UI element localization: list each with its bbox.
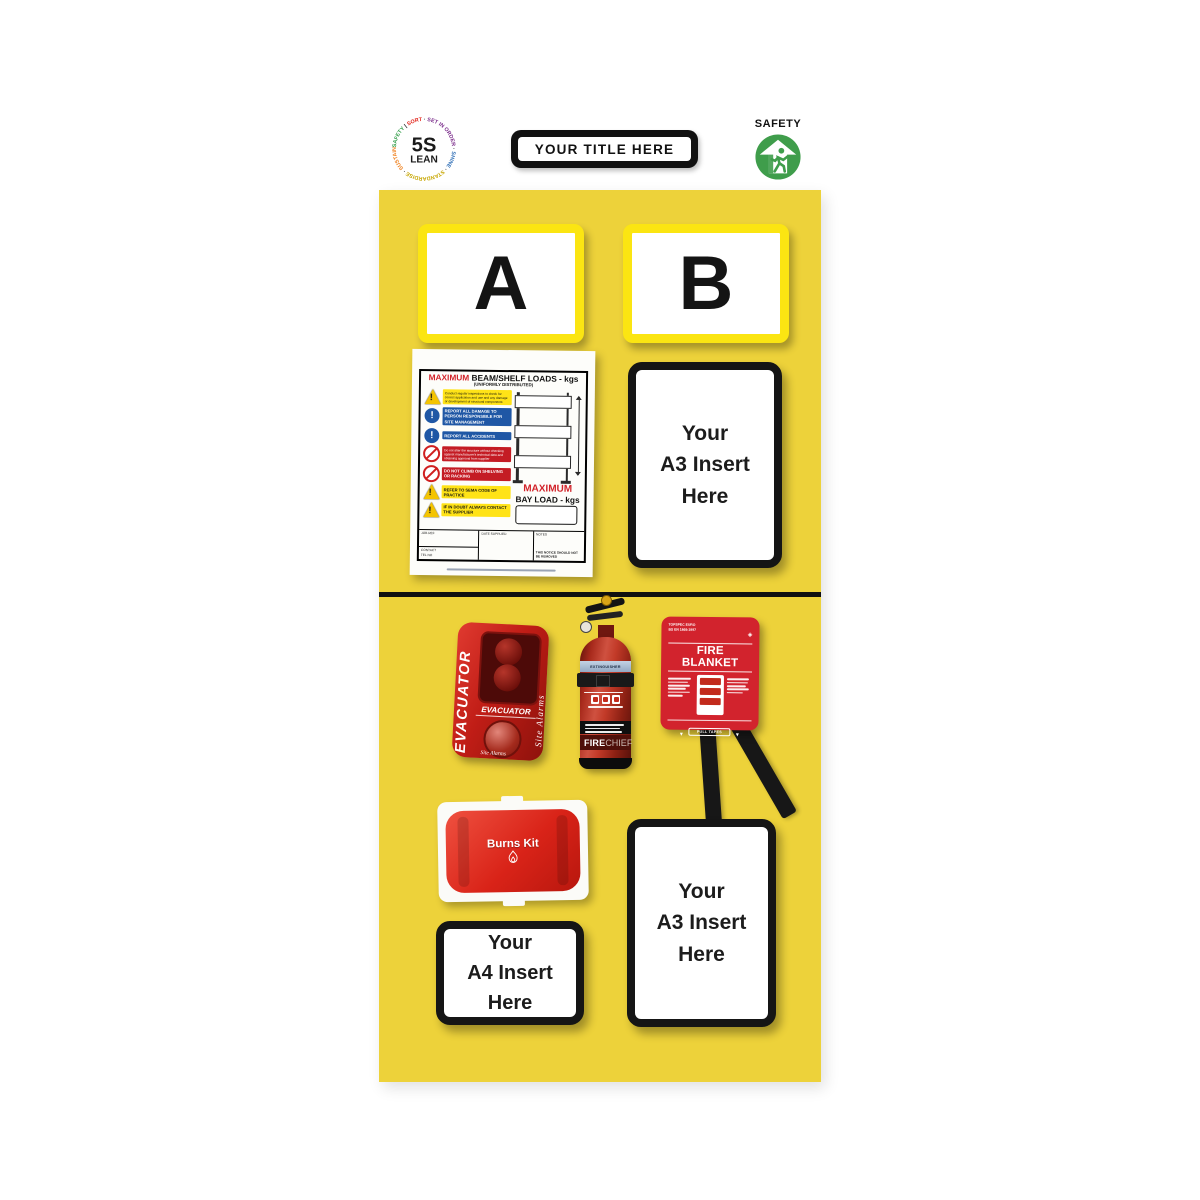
flame-icon xyxy=(507,850,519,864)
bay-load-caption: MAXIMUM BAY LOAD - kgs xyxy=(514,484,582,503)
form-job-ref: JOB REF xyxy=(419,530,479,547)
poster-footnote-line xyxy=(446,568,556,571)
safety-exit-icon xyxy=(754,133,802,181)
extinguisher-base xyxy=(579,758,632,769)
burns-kit-station: Burns Kit xyxy=(437,800,589,903)
extinguisher-tamper-seal xyxy=(601,595,612,606)
evacuator-front-label: EVACUATOR xyxy=(476,705,536,719)
alarm-bell xyxy=(494,638,522,666)
rack-rule-row: ! REPORT ALL ACCIDENTS xyxy=(423,428,511,444)
instruction-pictogram xyxy=(602,695,610,704)
extinguisher-band-label: EXTINGUISHER xyxy=(580,661,631,672)
form-date-supplied: DATE SUPPLIED xyxy=(479,531,534,561)
bay-label-b: B xyxy=(623,224,789,343)
rack-rule-row: DO NOT CLIMB ON SHELVING OR RACKING xyxy=(423,465,511,483)
alarm-bell xyxy=(493,664,521,692)
a4-insert-frame: Your A4 Insert Here xyxy=(436,921,584,1025)
extinguisher-body: EXTINGUISHER FIRECHIEF xyxy=(580,637,631,769)
rack-title-maximum: MAXIMUM xyxy=(429,372,470,382)
extinguisher-brand: FIRECHIEF xyxy=(580,735,631,750)
a4-insert-placeholder: Your A4 Insert Here xyxy=(467,928,553,1018)
5s-lean-logo: SAFETY | SORT · SET IN ORDER · SHINE · S… xyxy=(385,110,463,188)
fire-extinguisher: EXTINGUISHER FIRECHIEF xyxy=(577,597,634,777)
rack-rule-row: Do not alter the structure without check… xyxy=(423,445,511,463)
a3-insert-placeholder: Your A3 Insert Here xyxy=(660,418,750,513)
warning-triangle-icon xyxy=(424,389,441,404)
form-notes: NOTES xyxy=(536,532,582,537)
certification-diamond-icon xyxy=(748,623,753,641)
burns-kit-case: Burns Kit xyxy=(445,809,580,893)
fire-blanket-instructions xyxy=(668,674,752,717)
a3-insert-frame-bottom: Your A3 Insert Here xyxy=(627,819,776,1027)
pressure-gauge-icon xyxy=(580,621,592,633)
a3-insert-frame-top: Your A3 Insert Here xyxy=(628,362,782,568)
form-tel-no: TEL NO xyxy=(421,553,476,559)
board-title-text: YOUR TITLE HERE xyxy=(535,142,675,157)
bay-letter-a: A xyxy=(474,246,529,322)
mandatory-circle-icon: ! xyxy=(423,428,440,443)
instruction-pictogram xyxy=(612,695,620,704)
form-do-not-remove: THIS NOTICE SHOULD NOT BE REMOVED xyxy=(536,550,582,559)
fire-blanket-title: FIRE BLANKET xyxy=(668,642,752,672)
warning-triangle-icon xyxy=(422,502,439,517)
bay-letter-b: B xyxy=(679,246,734,322)
rack-rule-row: Conduct regular inspections to check for… xyxy=(424,389,512,405)
logo-5s-text: 5S xyxy=(412,134,437,156)
rack-notice-title: MAXIMUM BEAM/SHELF LOADS - kgs (UNIFORML… xyxy=(421,373,586,388)
evacuator-window xyxy=(477,631,542,706)
instruction-pictogram xyxy=(591,695,599,704)
prohibition-circle-icon xyxy=(423,445,440,462)
rack-safety-notice: MAXIMUM BEAM/SHELF LOADS - kgs (UNIFORML… xyxy=(410,349,596,577)
rack-rule-row: IF IN DOUBT ALWAYS CONTACT THE SUPPLIER xyxy=(422,502,510,518)
extinguisher-lever xyxy=(587,611,623,621)
mounting-strap xyxy=(577,673,634,687)
fire-blanket-spec: TOPSPEC EURO BS EN 1869:1997 xyxy=(668,623,696,632)
logo-lean-text: LEAN xyxy=(410,154,438,165)
rack-notice-form: JOB REF CONTACT TEL NO DATE SUPPLIED NOT… xyxy=(419,529,584,561)
bracket-tab xyxy=(501,796,523,803)
fire-blanket-pack: TOPSPEC EURO BS EN 1869:1997 FIRE BLANKE… xyxy=(660,616,759,730)
no-climbing-icon xyxy=(423,465,440,482)
board-title-plate: YOUR TITLE HERE xyxy=(511,130,698,168)
mandatory-circle-icon: ! xyxy=(423,409,440,424)
case-rib xyxy=(457,817,469,887)
pull-tapes-label: PULL TAPES xyxy=(689,728,730,736)
rack-diagram-column: MAXIMUM BAY LOAD - kgs xyxy=(513,390,583,524)
a3-insert-placeholder: Your A3 Insert Here xyxy=(657,876,747,971)
rack-rule-row: ! REPORT ALL DAMAGE TO PERSON RESPONSIBL… xyxy=(423,407,511,426)
board-title-inner: YOUR TITLE HERE xyxy=(518,137,691,161)
rack-diagram xyxy=(514,392,583,483)
bay-load-write-in-box xyxy=(515,505,577,525)
rack-rule-row: REFER TO SEMA CODE OF PRACTICE xyxy=(423,484,511,500)
down-arrow-icon xyxy=(735,723,740,741)
rack-notice-rules: Conduct regular inspections to check for… xyxy=(422,389,512,524)
extinguisher-instruction-label xyxy=(584,690,627,720)
instruction-text-left xyxy=(668,674,694,716)
bay-label-a: A xyxy=(418,224,584,343)
case-rib xyxy=(556,815,568,885)
extinguisher-warning-band xyxy=(580,721,631,734)
rack-notice-frame: MAXIMUM BEAM/SHELF LOADS - kgs (UNIFORML… xyxy=(417,369,588,563)
burns-kit-label: Burns Kit xyxy=(487,838,539,851)
down-arrow-icon xyxy=(679,723,684,741)
instruction-text-right xyxy=(726,675,752,717)
evacuator-site-alarm: EVACUATOR EVACUATOR Site Alarms Site Ala… xyxy=(452,622,550,762)
pull-tapes-row: PULL TAPES xyxy=(667,719,751,741)
instruction-diagram-panel xyxy=(696,674,723,714)
safety-badge-label: SAFETY xyxy=(752,118,804,130)
product-image-canvas: SAFETY | SORT · SET IN ORDER · SHINE · S… xyxy=(0,0,1200,1200)
bracket-tab xyxy=(503,899,525,906)
warning-triangle-icon xyxy=(423,484,440,499)
